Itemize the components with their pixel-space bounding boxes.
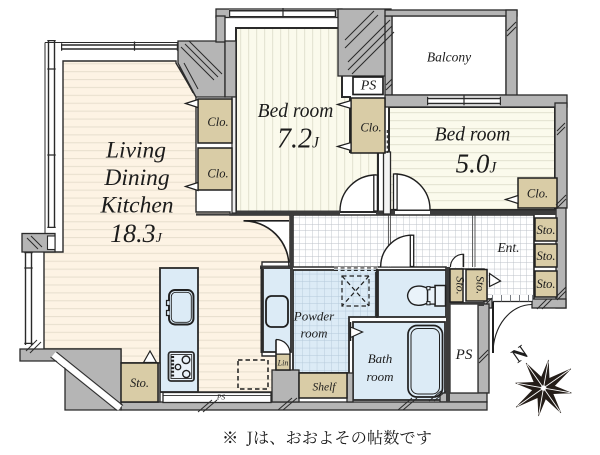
svg-text:Lin: Lin: [277, 359, 289, 368]
svg-text:Bath: Bath: [368, 351, 393, 366]
svg-text:Shelf: Shelf: [313, 382, 338, 394]
svg-text:PS: PS: [455, 347, 473, 363]
svg-text:Clo.: Clo.: [360, 121, 381, 135]
svg-text:Sto.: Sto.: [454, 276, 468, 294]
svg-text:Sto.: Sto.: [130, 376, 149, 390]
svg-text:Clo.: Clo.: [207, 115, 228, 129]
svg-text:room: room: [367, 369, 394, 384]
svg-text:Living: Living: [105, 138, 166, 164]
svg-text:Bed room: Bed room: [258, 101, 334, 122]
svg-text:Clo.: Clo.: [527, 187, 548, 201]
svg-text:Powder: Powder: [293, 309, 335, 324]
svg-text:PS: PS: [360, 79, 377, 94]
svg-text:PS: PS: [216, 393, 226, 402]
svg-text:Sto.: Sto.: [536, 249, 555, 263]
svg-text:Kitchen: Kitchen: [99, 193, 173, 219]
svg-text:Clo.: Clo.: [207, 167, 228, 181]
svg-text:Bed room: Bed room: [435, 125, 511, 146]
svg-text:Sto.: Sto.: [536, 277, 555, 291]
svg-text:Dining: Dining: [103, 165, 170, 191]
svg-text:Balcony: Balcony: [427, 50, 471, 65]
svg-text:18.3J: 18.3J: [110, 219, 163, 248]
svg-text:Ent.: Ent.: [496, 240, 519, 255]
svg-text:Sto.: Sto.: [536, 223, 555, 237]
svg-text:room: room: [301, 326, 328, 341]
svg-text:Sto.: Sto.: [474, 276, 488, 294]
